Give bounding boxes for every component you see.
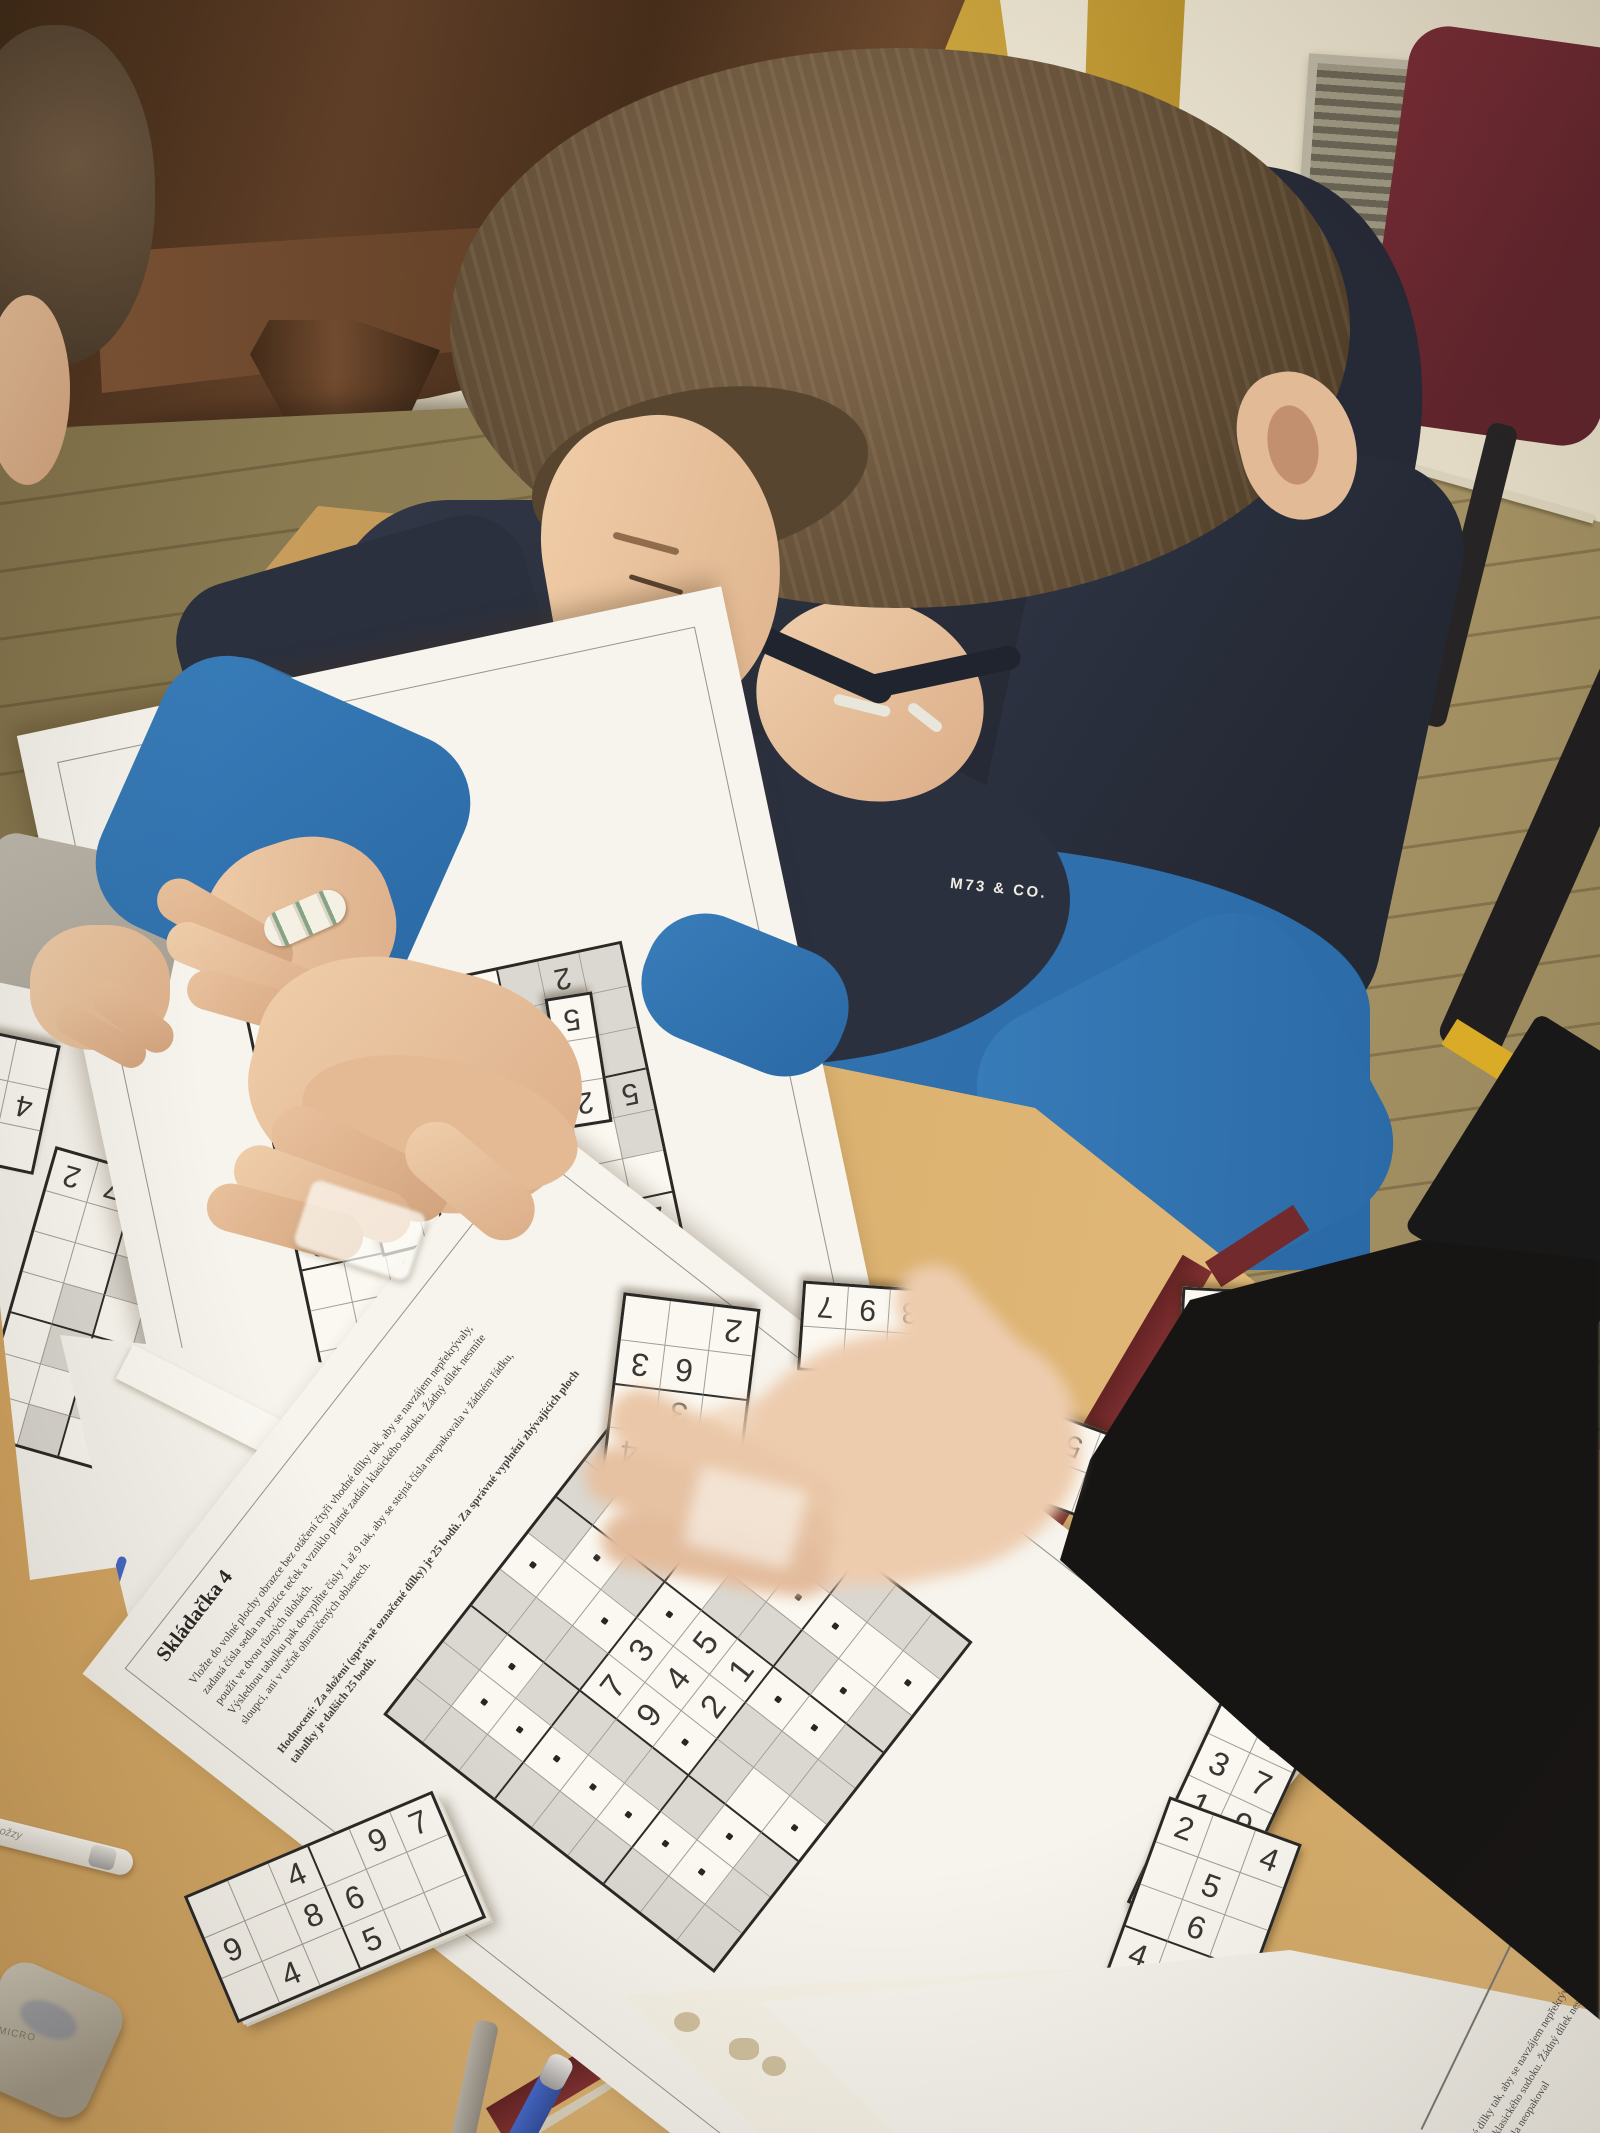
sudoku-cell — [621, 1296, 670, 1345]
punch-hole — [674, 2012, 700, 2032]
sudoku-cell — [578, 944, 628, 994]
sudoku-cell — [665, 1301, 714, 1350]
punch-hole — [729, 2038, 759, 2060]
sudoku-cell: 6 — [659, 1345, 708, 1394]
sudoku-cell — [302, 1261, 352, 1311]
sudoku-cell: 2 — [708, 1306, 757, 1355]
sudoku-cell: 3 — [615, 1339, 664, 1388]
sudoku-cell — [7, 1039, 57, 1089]
classroom-photo: M73 & CO. 86972 5 Vložte do volné plochy… — [0, 0, 1600, 2133]
punch-hole — [762, 2056, 786, 2076]
marker-ferrule — [87, 1844, 118, 1872]
sudoku-cell: 5 — [604, 1068, 654, 1118]
sudoku-cell: 4 — [0, 1080, 48, 1130]
sudoku-cell: 9 — [845, 1287, 890, 1332]
sudoku-cell — [703, 1350, 752, 1399]
sudoku-cell: 7 — [803, 1284, 848, 1329]
sudoku-cell — [613, 1109, 663, 1159]
marker-text: ožzy — [0, 1825, 23, 1842]
